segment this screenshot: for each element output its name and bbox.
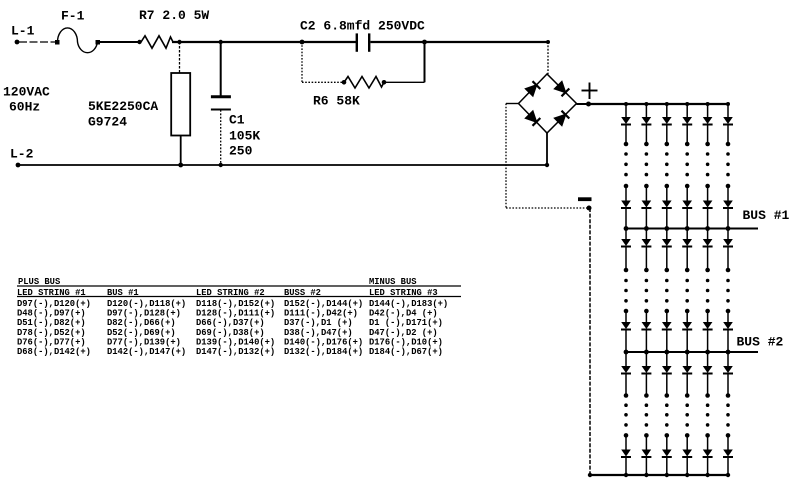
svg-text:BUS #1: BUS #1: [743, 208, 790, 223]
svg-text:D52(-),D69(+): D52(-),D69(+): [107, 328, 176, 338]
svg-text:D42(-),D4 (+): D42(-),D4 (+): [369, 308, 438, 318]
svg-text:250: 250: [229, 144, 253, 159]
svg-text:D139(-),D140(+): D139(-),D140(+): [196, 337, 275, 347]
svg-text:C1: C1: [229, 113, 245, 128]
svg-text:D142(-),D147(+): D142(-),D147(+): [107, 347, 186, 357]
svg-text:120VAC: 120VAC: [3, 85, 50, 100]
svg-text:L-1: L-1: [11, 24, 35, 39]
svg-text:BUS #2: BUS #2: [737, 335, 784, 350]
svg-text:F-1: F-1: [61, 9, 85, 24]
svg-text:D47(-),D2 (+): D47(-),D2 (+): [369, 328, 438, 338]
svg-text:D48(-),D97(+): D48(-),D97(+): [17, 308, 86, 318]
svg-text:D147(-),D132(+): D147(-),D132(+): [196, 347, 275, 357]
svg-text:D1 (-),D171(+): D1 (-),D171(+): [369, 318, 443, 328]
svg-text:D152(-),D144(+): D152(-),D144(+): [284, 299, 363, 309]
svg-text:R6 58K: R6 58K: [313, 94, 360, 109]
svg-text:5KE2250CA: 5KE2250CA: [88, 99, 158, 114]
svg-text:C2 6.8mfd 250VDC: C2 6.8mfd 250VDC: [300, 19, 425, 34]
svg-text:60Hz: 60Hz: [9, 100, 40, 115]
svg-text:D66(-),D37(+): D66(-),D37(+): [196, 318, 265, 328]
svg-text:D118(-),D152(+): D118(-),D152(+): [196, 299, 275, 309]
svg-text:D132(-),D184(+): D132(-),D184(+): [284, 347, 363, 357]
svg-text:D176(-),D10(+): D176(-),D10(+): [369, 337, 443, 347]
svg-text:D68(-),D142(+): D68(-),D142(+): [17, 347, 91, 357]
svg-text:D144(-),D183(+): D144(-),D183(+): [369, 299, 448, 309]
svg-text:D97(-),D128(+): D97(-),D128(+): [107, 308, 181, 318]
svg-text:D51(-),D82(+): D51(-),D82(+): [17, 318, 86, 328]
svg-text:D76(-),D77(+): D76(-),D77(+): [17, 337, 86, 347]
svg-text:R7 2.0 5W: R7 2.0 5W: [139, 8, 209, 23]
svg-text:D37(-),D1 (+): D37(-),D1 (+): [284, 318, 353, 328]
svg-text:D78(-),D52(+): D78(-),D52(+): [17, 328, 86, 338]
svg-text:D120(-),D118(+): D120(-),D118(+): [107, 299, 186, 309]
svg-text:D77(-),D139(+): D77(-),D139(+): [107, 337, 181, 347]
svg-text:D69(-),D38(+): D69(-),D38(+): [196, 328, 265, 338]
svg-text:L-2: L-2: [10, 147, 34, 162]
svg-text:105K: 105K: [229, 129, 260, 144]
svg-text:D111(-),D42(+): D111(-),D42(+): [284, 308, 358, 318]
svg-text:D38(-),D47(+): D38(-),D47(+): [284, 328, 353, 338]
svg-text:D140(-),D176(+): D140(-),D176(+): [284, 337, 363, 347]
svg-text:D82(-),D66(+): D82(-),D66(+): [107, 318, 176, 328]
svg-text:D184(-),D67(+): D184(-),D67(+): [369, 347, 443, 357]
svg-text:G9724: G9724: [88, 115, 127, 130]
svg-text:D97(-),D120(+): D97(-),D120(+): [17, 299, 91, 309]
svg-text:D128(-),D111(+): D128(-),D111(+): [196, 308, 275, 318]
